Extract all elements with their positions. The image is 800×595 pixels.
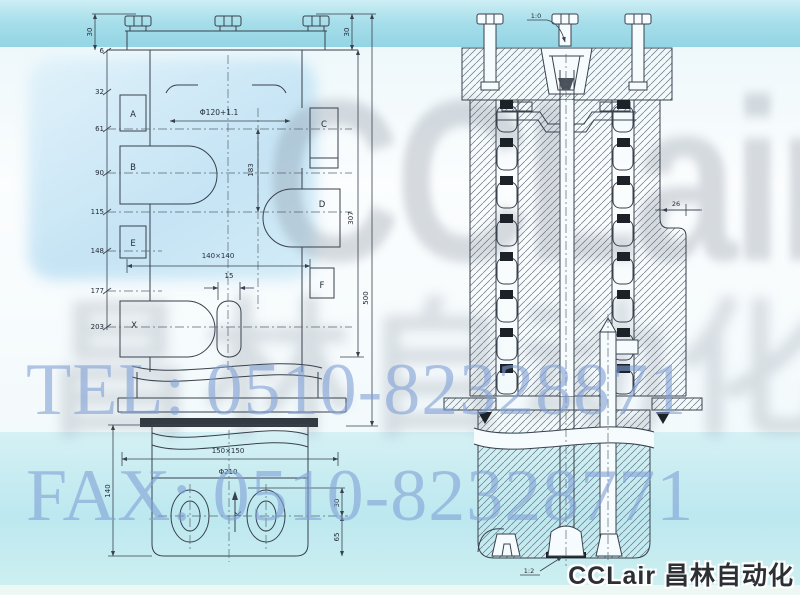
dim-body-height: 307 [347,211,355,224]
tel-watermark: TEL: 0510-82328871 [26,348,687,433]
port-label-a: A [130,110,136,120]
dim-slot-width: 15 [225,272,234,280]
dim-square: 140×140 [202,252,235,260]
dim-ladder-177: 177 [91,287,104,295]
port-label-b: B [130,163,136,173]
dim-ladder-90: 90 [95,169,104,177]
dim-top-right: 30 [343,28,351,37]
port-label-f: F [320,281,325,291]
dim-ladder-6: 6 [100,47,105,55]
footer-brand-text: CCLair 昌林自动化 [568,556,794,592]
dim-taper-top: 1:0 [531,12,541,20]
port-label-d: D [319,200,326,210]
port-label-e: E [130,239,135,249]
dim-ladder-148: 148 [91,247,104,255]
dim-taper-bottom: 1:2 [524,567,534,575]
front-ports [120,95,340,357]
dim-top-left: 30 [86,28,94,37]
dim-ladder-115: 115 [91,208,104,216]
dim-ladder-203: 203 [91,323,104,331]
dim-step-width: 26 [672,200,680,208]
dim-ladder-32: 32 [95,88,104,96]
port-label-x: X [131,321,137,331]
front-top-bolts [125,16,329,31]
fax-watermark: FAX: 0510-82328771 [26,454,694,539]
dim-ladder-61: 61 [95,125,104,133]
dim-bore: Φ120+1.1 [200,108,239,117]
port-label-c: C [321,120,327,130]
dim-bore-span: 183 [247,163,255,176]
dim-total-height: 500 [362,291,370,304]
product-drawing-page: CCLair 昌林自动化 [0,0,800,595]
